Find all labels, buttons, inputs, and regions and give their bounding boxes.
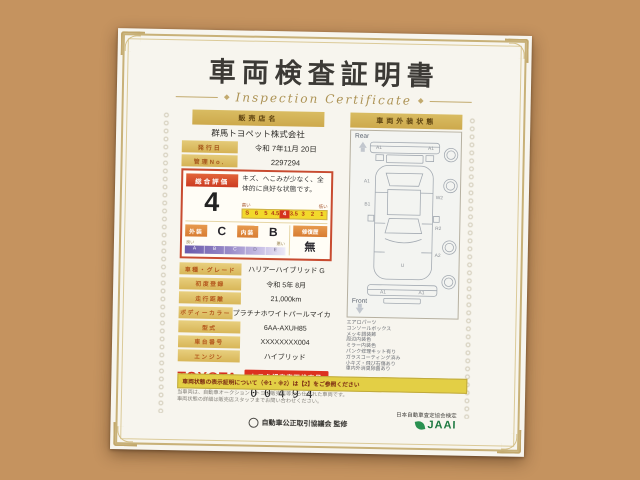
- grade-cell: A: [185, 245, 205, 253]
- spec-value: 令和 5年 8月: [241, 279, 331, 291]
- overall-evaluation-box: 総合評価 4 キズ、へこみが少なく、全体的に良好な状態です。 高い 低い S 6…: [180, 168, 334, 261]
- repair-history-block: 修復歴 無: [289, 225, 328, 256]
- scale-cell: 4: [280, 210, 289, 218]
- spec-label: 型式: [178, 320, 240, 333]
- page-subtitle: Inspection Certificate: [235, 90, 412, 107]
- scale-cell: 5: [261, 210, 270, 218]
- left-coil-ornament: [157, 111, 171, 413]
- car-exterior-diagram: A1 A1 A1 B1 W2 R2 A2 U A1 A1: [354, 133, 461, 315]
- spec-value: 21,000km: [241, 295, 331, 304]
- car-diagram-box: Rear: [347, 130, 463, 320]
- evaluation-score-block: 総合評価 4: [185, 173, 238, 218]
- jaai-leaf-icon: [415, 420, 426, 431]
- control-no-label: 管理No.: [181, 154, 237, 167]
- flourish-line: [176, 96, 218, 98]
- scale-cell: 4.5: [270, 210, 279, 218]
- vehicle-spec-table: 車種・グレード ハリアーハイブリッド G 初度登録 令和 5年 8月 走行距離 …: [178, 262, 332, 364]
- issue-date-label: 発行日: [182, 140, 238, 153]
- spec-row-engine: エンジン ハイブリッド: [178, 349, 330, 364]
- evaluation-score: 4: [185, 186, 238, 218]
- control-no-row: 管理No. 2297294: [181, 154, 333, 169]
- scale-cell: 2: [308, 211, 317, 219]
- exterior-condition-column: 車両外装状態 Rear: [346, 113, 463, 375]
- spec-row-first-registration: 初度登録 令和 5年 8月: [179, 277, 331, 292]
- interior-grade: B: [260, 225, 286, 239]
- repair-history-value: 無: [293, 237, 327, 257]
- fair-trade-council-icon: [248, 418, 258, 428]
- exterior-label: 外装: [185, 224, 207, 236]
- exterior-interior-row: 外装 C 内装 B: [185, 223, 286, 239]
- right-coil-ornament: [463, 117, 477, 419]
- evaluation-detail: キズ、へこみが少なく、全体的に良好な状態です。 高い 低い S 6 5 4.5 …: [241, 174, 328, 220]
- spec-label: 走行距離: [179, 291, 241, 304]
- spec-row-mileage: 走行距離 21,000km: [179, 291, 331, 306]
- details-column: 販売店名 群馬トヨペット株式会社 発行日 令和 7年11月 20日 管理No. …: [177, 109, 335, 401]
- spec-value: プラチナホワイトパールマイカ: [233, 308, 331, 320]
- scale-cell: 3.5: [289, 210, 298, 218]
- spec-row-model-code: 型式 6AA-AXUH85: [178, 320, 330, 335]
- spec-row-body-color: ボディーカラー プラチナホワイトパールマイカ: [179, 306, 331, 321]
- issue-date-value: 令和 7年11月 20日: [238, 142, 334, 155]
- spec-row-model-grade: 車種・グレード ハリアーハイブリッド G: [179, 262, 331, 277]
- evaluation-bottom: 外装 C 内装 B 良い 悪い A B C D E: [185, 220, 328, 256]
- panel-mark: B1: [364, 201, 370, 207]
- grade-scale-bar: A B C D E: [185, 245, 286, 255]
- panel-mark: W2: [436, 195, 444, 201]
- grade-cell: D: [245, 247, 265, 255]
- dealer-name: 群馬トヨペット株式会社: [182, 126, 334, 141]
- equipment-note: 車内外消臭除菌あり: [346, 367, 458, 375]
- jaai-block: 日本自動車査定協会検定 JAAI: [396, 410, 457, 431]
- grade-cell: B: [205, 246, 225, 254]
- control-no-value: 2297294: [237, 157, 333, 168]
- spec-value: ハリアーハイブリッド G: [241, 265, 331, 277]
- jaai-logo-text: JAAI: [427, 419, 456, 432]
- grade-cell: E: [266, 247, 286, 255]
- spec-label: ボディーカラー: [179, 306, 233, 319]
- panel-mark: A1: [428, 146, 434, 152]
- spec-label: 車種・グレード: [179, 262, 241, 275]
- spec-label: 車台番号: [178, 335, 240, 348]
- panel-mark: A1: [364, 178, 370, 184]
- evaluation-top: 総合評価 4 キズ、へこみが少なく、全体的に良好な状態です。 高い 低い S 6…: [185, 173, 328, 220]
- repair-history-label: 修復歴: [293, 226, 327, 238]
- spec-label: 初度登録: [179, 277, 241, 290]
- spec-label: エンジン: [178, 349, 240, 362]
- scale-cell: 6: [252, 210, 261, 218]
- scale-cell: S: [242, 210, 251, 218]
- evaluation-scale-bar: S 6 5 4.5 4 3.5 3 2 1: [241, 209, 327, 221]
- spec-value: XXXXXXXX004: [240, 339, 330, 348]
- fair-trade-council-text: 自動車公正取引協議会 監修: [261, 418, 347, 430]
- flourish-diamond: [418, 98, 424, 104]
- evaluation-comment: キズ、へこみが少なく、全体的に良好な状態です。: [242, 174, 328, 195]
- panel-mark: A1: [380, 289, 386, 295]
- panel-mark: U: [401, 263, 405, 269]
- fair-trade-council-block: 自動車公正取引協議会 監修: [248, 418, 347, 430]
- panel-mark: R2: [435, 226, 442, 232]
- evaluation-label: 総合評価: [186, 173, 238, 187]
- fine-print: 当車両は、自動車オークション・トヨタ販売店等から仕入れた車両です。 車両状態の詳…: [177, 389, 367, 407]
- page-title: 車両検査証明書: [117, 48, 532, 95]
- issue-date-row: 発行日 令和 7年11月 20日: [182, 140, 334, 155]
- flourish-line: [430, 101, 472, 103]
- grade-cell: C: [225, 246, 245, 254]
- exterior-interior-block: 外装 C 内装 B 良い 悪い A B C D E: [185, 223, 287, 255]
- dealer-label: 販売店名: [192, 110, 324, 128]
- exterior-panel-header: 車両外装状態: [350, 113, 462, 130]
- spec-row-chassis-no: 車台番号 XXXXXXXX004: [178, 335, 330, 350]
- panel-mark: A2: [435, 253, 441, 259]
- footer-row: 自動車公正取引協議会 監修 日本自動車査定協会検定 JAAI: [248, 408, 456, 432]
- flourish-diamond: [224, 94, 230, 100]
- scale-cell: 1: [317, 211, 326, 219]
- panel-mark: A1: [376, 145, 382, 151]
- corner-ornament: [113, 422, 137, 446]
- exterior-grade: C: [209, 224, 235, 238]
- arrow-down-icon: [356, 308, 364, 314]
- corner-ornament: [497, 429, 521, 453]
- equipment-note-list: エアロパーツ コンソールボックス メッキ調装飾 周辺内装色 ミラー内装色 パンク…: [346, 321, 459, 375]
- interior-label: 内装: [237, 225, 259, 237]
- scale-cell: 3: [298, 211, 307, 219]
- jaai-logo-row: JAAI: [415, 419, 456, 432]
- panel-mark: A1: [419, 290, 425, 296]
- spec-value: ハイブリッド: [240, 352, 330, 364]
- inspection-certificate-page: 車両検査証明書 Inspection Certificate 販売店名 群馬トヨ…: [110, 28, 532, 457]
- spec-value: 6AA-AXUH85: [240, 324, 330, 333]
